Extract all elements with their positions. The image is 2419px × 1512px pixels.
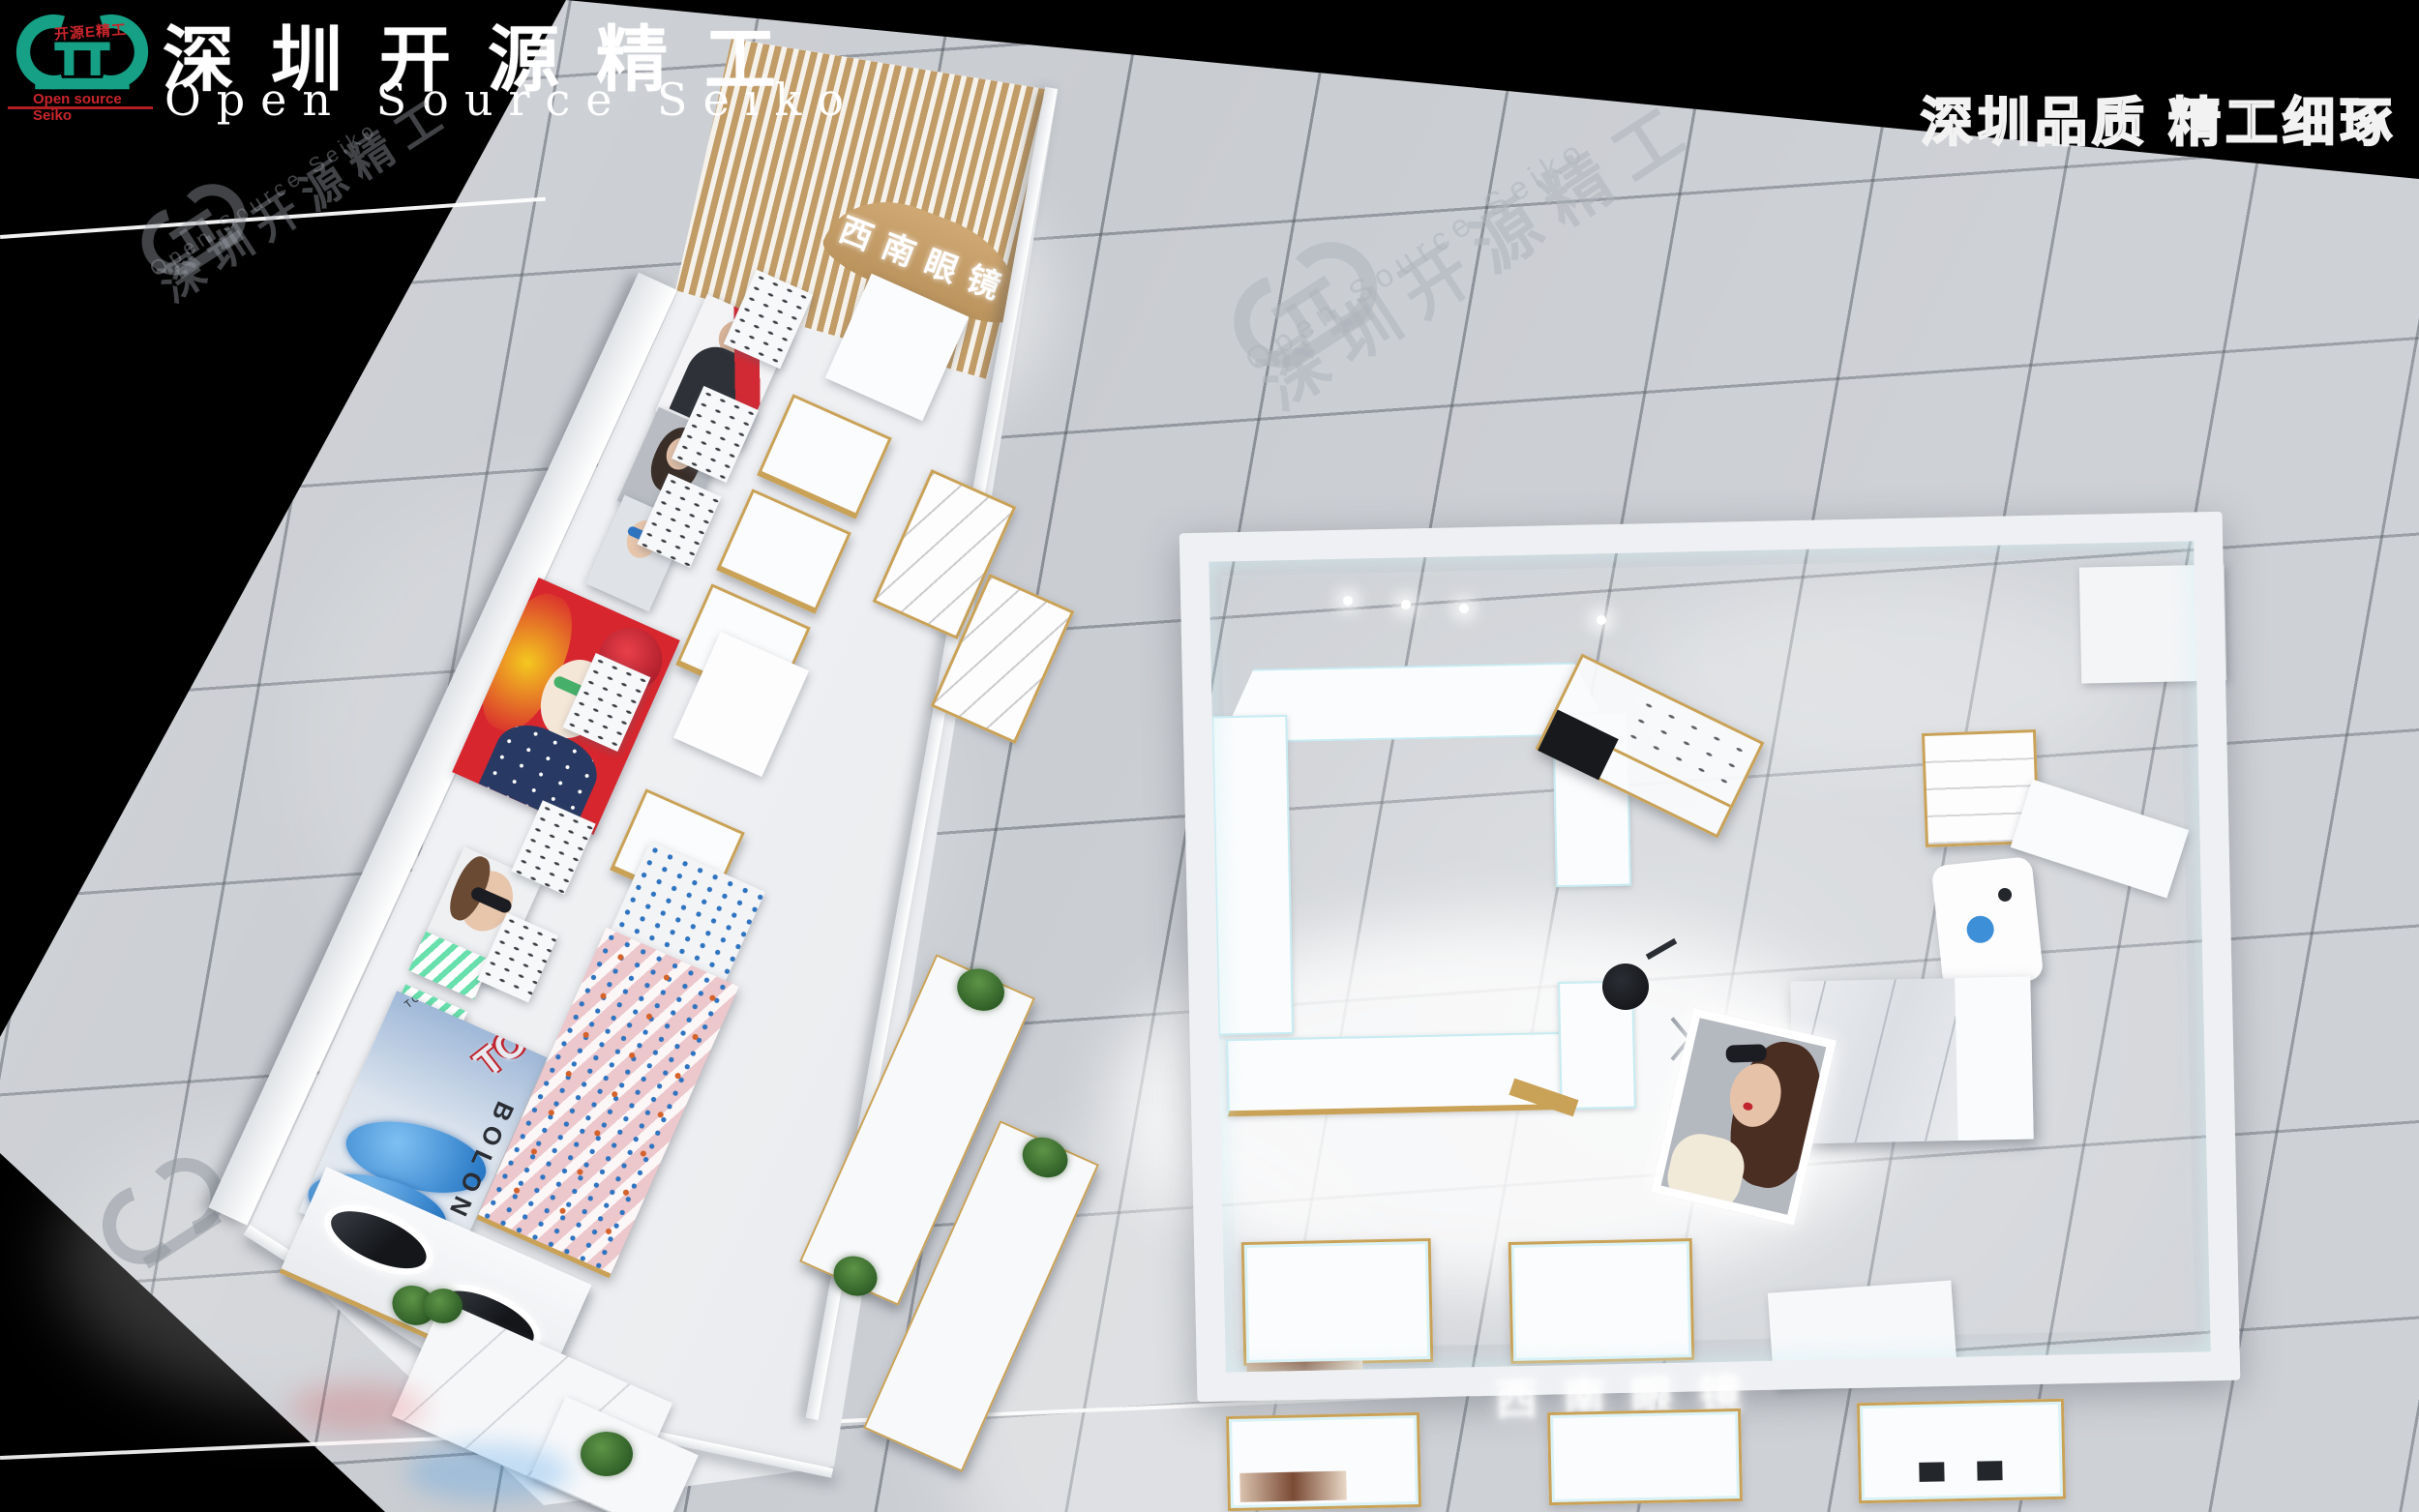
- floor-reflection: [406, 1443, 571, 1501]
- drawer-handle: [1919, 1462, 1944, 1482]
- footer-address: ADD:深圳市南山区创业路中兴工业城3栋: [818, 1508, 1505, 1512]
- quality-tagline: 深圳品质 精工细琢: [1921, 79, 2397, 156]
- ceiling-light: [1343, 596, 1353, 606]
- render-canvas: 深圳开源精工 Open Source Seiko 西南眼镜: [0, 0, 2419, 1512]
- drawer-handle: [1977, 1461, 2002, 1481]
- ceiling-light: [1459, 604, 1469, 613]
- ceiling-light: [1401, 600, 1411, 609]
- brand-subtitle: Open Source Seiko: [164, 74, 859, 126]
- logo-underline: [8, 106, 153, 109]
- glass-display-table: [1857, 1399, 2066, 1503]
- plant: [581, 1432, 633, 1476]
- logo-box: 开源E精工 Open source Seiko: [8, 6, 158, 106]
- plant: [424, 1289, 463, 1323]
- island-light-frame: [1180, 512, 2241, 1402]
- ceiling-light: [1597, 615, 1606, 625]
- glass-display-table: [1226, 1412, 1421, 1511]
- floor-reflection: [290, 1383, 426, 1432]
- glass-display-table: [1547, 1408, 1743, 1505]
- table-front-photo: [1239, 1471, 1347, 1502]
